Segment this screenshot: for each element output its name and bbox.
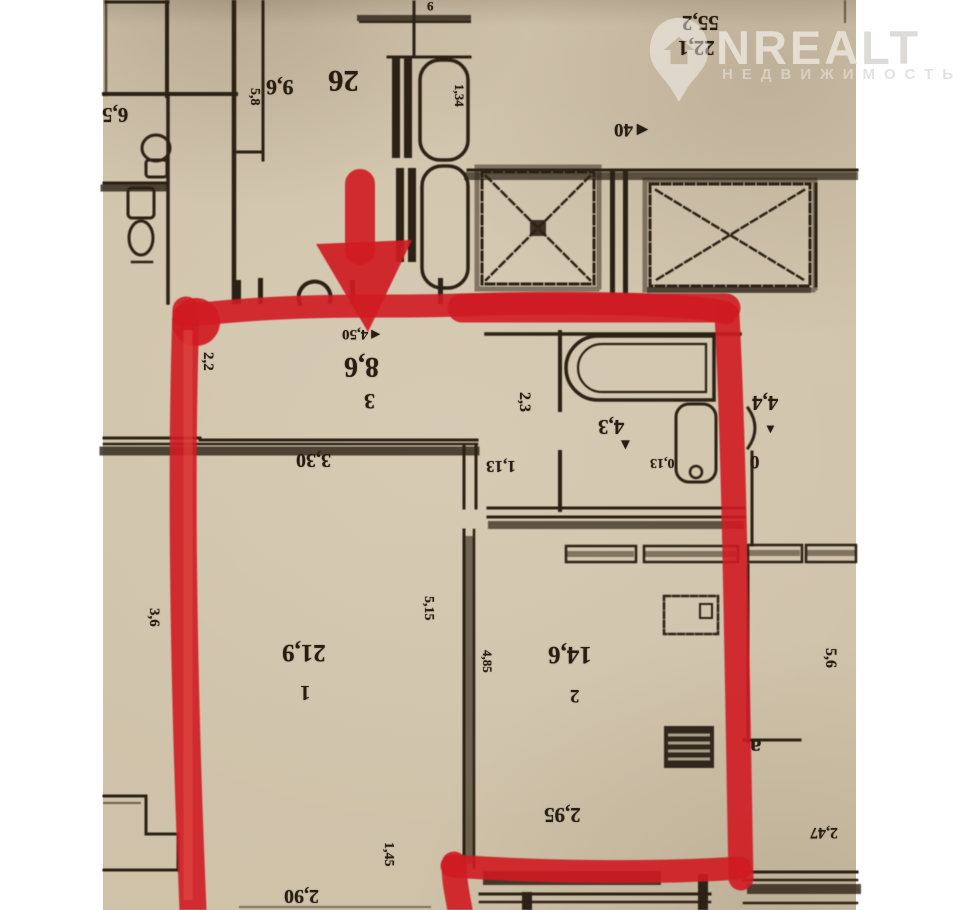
floor-plan-drawing <box>0 0 960 910</box>
vent-shaft-symbol <box>664 726 714 768</box>
red-arrow-head <box>316 240 412 332</box>
floor-plan-screenshot: 55,222,16,59,6265,81,349◄40◄4,508,632,23… <box>0 0 960 910</box>
